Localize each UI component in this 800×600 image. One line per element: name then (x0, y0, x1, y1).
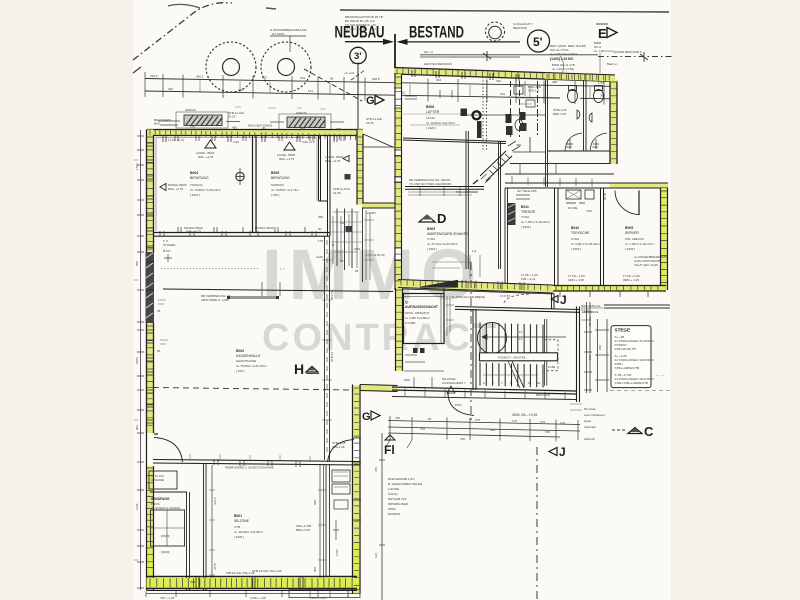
svg-text:[ 150 ]: [ 150 ] (271, 193, 280, 197)
svg-text:4+ 70,85m² 3+45,04m²: 4+ 70,85m² 3+45,04m² (190, 188, 221, 192)
svg-text:[ 1503 ]: [ 1503 ] (571, 247, 581, 251)
svg-text:Haus: Haus (584, 419, 592, 423)
svg-text:740: 740 (545, 430, 550, 434)
svg-text:1708 + 1,05: 1708 + 1,05 (250, 596, 266, 600)
svg-text:HEIFTEN BESTAND: HEIFTEN BESTAND (424, 62, 452, 66)
svg-text:AUSSMAUERN ?: AUSSMAUERN ? (442, 381, 466, 385)
svg-text:05: 05 (157, 309, 161, 313)
svg-text:175: 175 (540, 420, 545, 424)
svg-text:Fl: Fl (384, 443, 395, 457)
svg-text:C: C (644, 424, 654, 439)
svg-text:175: 175 (336, 127, 341, 131)
svg-text:LÜFTER: LÜFTER (426, 110, 440, 114)
svg-text:148: 148 (490, 428, 495, 432)
svg-text:2-ZONE: 2-ZONE (388, 487, 399, 491)
svg-text:12A42: 12A42 (426, 116, 435, 120)
svg-text:STB-13-ICE 700+1,06: STB-13-ICE 700+1,06 (252, 569, 282, 573)
svg-text:BRH 1,05: BRH 1,05 (553, 112, 566, 116)
svg-text:GY.OBL: GY.OBL (405, 321, 416, 325)
svg-text:BAU: BAU (154, 122, 160, 126)
svg-text:H: H (294, 361, 304, 377)
svg-text:Mad (+): Mad (+) (607, 62, 617, 66)
svg-text:50‚ronde: 50‚ronde (584, 407, 596, 411)
svg-text:B006: B006 (426, 105, 434, 109)
svg-text:900+ +4,75: 900+ +4,75 (279, 157, 295, 161)
svg-text:Attentats: Attentats (584, 425, 596, 429)
svg-text:[ 1503 ]: [ 1503 ] (625, 247, 635, 251)
svg-text:4+ 7,38m² 3+45,04m²: 4+ 7,38m² 3+45,04m² (521, 220, 550, 224)
svg-text:362: 362 (496, 79, 501, 83)
svg-text:17,0 +4,00 4X: 17,0 +4,00 4X (366, 253, 385, 257)
svg-text:B004: B004 (190, 171, 198, 175)
svg-text:G: G (366, 95, 375, 107)
svg-text:12: 12 (519, 330, 523, 334)
svg-text:GASCME: GASCME (151, 478, 164, 482)
svg-text:B011: B011 (521, 205, 529, 209)
svg-text:4+ 7,09m² 3+45,74m²: 4+ 7,09m² 3+45,74m² (625, 242, 654, 246)
svg-text:[ 1503 ]: [ 1503 ] (521, 225, 531, 229)
svg-text:C180: C180 (548, 365, 556, 369)
svg-text:NEUBAU: NEUBAU (335, 23, 385, 42)
svg-text:WINDFANG: WINDFANG (151, 497, 170, 501)
svg-text:B. ANSCHLUSS EBENE: B. ANSCHLUSS EBENE (452, 295, 485, 299)
svg-text:NJ-TANK: NJ-TANK (272, 32, 284, 36)
svg-text:605: 605 (135, 261, 139, 266)
svg-text:175: 175 (512, 419, 517, 423)
svg-text:05-116: 05-116 (588, 317, 592, 326)
svg-text:D: D (437, 211, 446, 226)
svg-text:G: G (362, 411, 371, 423)
svg-text:3,60: 3,60 (233, 140, 239, 144)
svg-text:760: 760 (460, 437, 465, 441)
svg-text:SB-ZONE: SB-ZONE (234, 519, 250, 523)
svg-text:BLECHWAND 1,8m: BLECHWAND 1,8m (388, 477, 415, 481)
svg-text:WAS ANSCHL.: WAS ANSCHL. (581, 304, 602, 308)
svg-text:4+05: 4+05 (316, 255, 323, 259)
svg-text:4+5,2: 4+5,2 (213, 497, 217, 505)
svg-text:450: 450 (318, 215, 323, 219)
svg-text:4+ SUSAN 4+SUSAN: 4+ SUSAN 4+SUSAN (151, 506, 180, 510)
svg-text:1753: 1753 (135, 163, 139, 170)
svg-text:KASSENHALLE: KASSENHALLE (236, 354, 261, 358)
svg-text:[ 1501 ]: [ 1501 ] (427, 247, 437, 251)
svg-text:MODUL B000: MODUL B000 (255, 226, 274, 230)
svg-text:P06 + 4,21: P06 + 4,21 (521, 277, 536, 281)
svg-text:1702: 1702 (335, 549, 339, 556)
svg-text:TOPHOA: TOPHOA (190, 183, 203, 187)
svg-text:10: 10 (537, 381, 541, 385)
svg-text:4+ 70,85m² 3+4,73m: 4+ 70,85m² 3+4,73m (271, 188, 299, 192)
svg-text:(0,0000 BESTAND A: (0,0000 BESTAND A (614, 50, 642, 54)
svg-text:05: 05 (157, 349, 161, 353)
svg-text:2009.00: 2009.00 (185, 108, 196, 112)
svg-text:BESTAND: BESTAND (513, 26, 528, 30)
svg-text:900+ +4,75: 900+ +4,75 (198, 155, 214, 159)
svg-text:450: 450 (300, 127, 305, 131)
svg-text:4+ 75,89m² 3+45,78m²: 4+ 75,89m² 3+45,78m² (236, 364, 267, 368)
svg-text:1,0: 1,0 (472, 249, 477, 253)
svg-text:B.: B. (332, 243, 335, 247)
svg-text:B005: B005 (271, 171, 279, 175)
svg-text:90: 90 (428, 417, 432, 421)
svg-text:STB-11: STB-11 (330, 352, 334, 362)
svg-text:17,04 +1,76: 17,04 +1,76 (168, 138, 184, 142)
svg-text:ABSTÄNDE N. 2,5M: ABSTÄNDE N. 2,5M (201, 298, 229, 302)
svg-text:BRH+1,05: BRH+1,05 (296, 528, 310, 532)
svg-text:184: 184 (300, 76, 305, 80)
svg-text:B009: B009 (625, 226, 633, 230)
svg-text:WARTEN/GARD./EVAK/PC: WARTEN/GARD./EVAK/PC (427, 232, 469, 236)
svg-text:700+1,06: 700+1,06 (332, 445, 345, 449)
svg-text:2009.00: 2009.00 (296, 111, 307, 115)
svg-text:J: J (560, 293, 567, 307)
svg-text:4+ 48,29m² 3+8,29m²: 4+ 48,29m² 3+8,29m² (234, 530, 263, 534)
svg-text:900+ +4,75: 900+ +4,75 (168, 187, 184, 191)
svg-text:570: 570 (500, 92, 505, 96)
svg-text:PERRONERE 2. SUSEITZONAHME: PERRONERE 2. SUSEITZONAHME (225, 466, 274, 470)
svg-text:392: 392 (262, 76, 267, 80)
svg-text:368: 368 (552, 80, 557, 84)
svg-text:110: 110 (560, 421, 565, 425)
svg-text:AUFZUGSSCHACHT: AUFZUGSSCHACHT (405, 305, 439, 309)
svg-text:21,05: 21,05 (228, 115, 236, 119)
svg-text:260: 260 (598, 345, 602, 350)
svg-text:900+ +4,75: 900+ +4,75 (325, 159, 341, 163)
svg-text:P06. A09/0,05: P06. A09/0,05 (625, 237, 644, 241)
svg-text:VYB: VYB (234, 525, 240, 529)
svg-text:RAMPFZ: RAMPFZ (388, 512, 401, 516)
svg-text:BESTAND: BESTAND (536, 393, 551, 397)
svg-text:3000, 05—+4,15: 3000, 05—+4,15 (512, 413, 537, 417)
svg-text:SAT(A): SAT(A) (388, 492, 398, 496)
svg-text:175: 175 (190, 125, 195, 129)
svg-text:SAPWOV: SAPWOV (271, 183, 284, 187)
svg-text:4770: 4770 (213, 563, 217, 570)
svg-text:141: 141 (308, 89, 313, 93)
svg-text:4,2 057: 4,2 057 (366, 211, 376, 215)
svg-text:190: 190 (238, 88, 243, 92)
svg-text:J: J (559, 445, 566, 459)
svg-text:[ 1520 ]: [ 1520 ] (234, 535, 244, 539)
svg-text:B003: B003 (427, 227, 435, 231)
svg-text:PPAC: PPAC (388, 507, 397, 511)
svg-text:STÜHRE: STÜHRE (163, 243, 175, 247)
svg-text:VYDA: VYDA (521, 215, 529, 219)
svg-text:VILL¶ GEV. 24,05: VILL¶ GEV. 24,05 (634, 263, 658, 267)
svg-text:5': 5' (533, 35, 543, 49)
svg-text:HAUPTKASSE: HAUPTKASSE (236, 359, 256, 363)
svg-text:STB 1,0: STB 1,0 (528, 89, 539, 93)
svg-text:4+ 5,86m² 3+45,04m²: 4+ 5,86m² 3+45,04m² (571, 242, 600, 246)
svg-text:292: 292 (168, 87, 173, 91)
svg-text:05: 05 (355, 269, 359, 273)
svg-text:PODEST + BAUTEIL: PODEST + BAUTEIL (498, 356, 527, 360)
svg-text:SPKG. KB/RA¶ M: SPKG. KB/RA¶ M (405, 311, 429, 315)
svg-text:4+ 75,76m² 5+45,26m²: 4+ 75,76m² 5+45,26m² (427, 242, 458, 246)
svg-text:21,05: 21,05 (333, 191, 341, 195)
svg-text:VYDA: VYDA (427, 237, 435, 241)
svg-text:POS: POS (455, 403, 461, 407)
svg-text:4+ 2,79m² 3+2,07m²: 4+ 2,79m² 3+2,07m² (550, 52, 577, 56)
svg-text:STBH STB+LAMPE/UTB: STBH STB+LAMPE/UTB (615, 381, 648, 385)
svg-text:370: 370 (374, 467, 378, 472)
svg-text:BERATUNG: BERATUNG (190, 176, 209, 180)
svg-text:GIT TELE AN¶: GIT TELE AN¶ (517, 189, 537, 193)
svg-text:30 60E: 30 60E (568, 206, 578, 210)
svg-text:— · —: — · — (656, 373, 665, 377)
svg-text:STB+LAMPE/UTB: STB+LAMPE/UTB (615, 366, 640, 370)
svg-text:Lehm Abbauers: Lehm Abbauers (584, 413, 606, 417)
svg-text:1146: 1146 (135, 503, 139, 510)
svg-text:176: 176 (318, 239, 323, 243)
svg-text:E: E (598, 26, 607, 41)
svg-text:605: 605 (313, 567, 317, 572)
svg-text:394: 394 (436, 78, 441, 82)
svg-text:SERVER: SERVER (625, 231, 639, 235)
svg-text:0984 + 1,05: 0984 + 1,05 (623, 278, 639, 282)
svg-text:BESTAND: BESTAND (409, 23, 464, 42)
svg-text:KELA-BLF-DWCE: KELA-BLF-DWCE (248, 124, 272, 128)
svg-text:TEEKÜCHE: TEEKÜCHE (571, 231, 590, 235)
svg-text:293,5: 293,5 (150, 74, 158, 78)
svg-text:TRESOR: TRESOR (521, 210, 536, 214)
svg-text:[ 1420 ]: [ 1420 ] (426, 126, 436, 130)
svg-text:904: 904 (135, 425, 139, 430)
svg-text:13: 13 (519, 337, 523, 341)
svg-text:96: 96 (330, 77, 334, 81)
svg-text:4+ 2,86² 3+4,80m²: 4+ 2,86² 3+4,80m² (405, 316, 430, 320)
svg-text:368: 368 (600, 94, 605, 98)
svg-text:4GE: 4GE (566, 145, 572, 149)
svg-text:90: 90 (318, 227, 322, 231)
svg-text:BERATUNG: BERATUNG (271, 176, 290, 180)
svg-text:21,05: 21,05 (366, 121, 374, 125)
svg-text:STB+ANTRI‚IT¶: STB+ANTRI‚IT¶ (615, 347, 637, 351)
svg-text:B010: B010 (571, 226, 579, 230)
svg-text:CONTRACT: CONTRACT (262, 317, 499, 359)
svg-text:3': 3' (354, 51, 362, 62)
svg-text:4GE: 4GE (592, 145, 598, 149)
svg-text:450,1: 450,1 (196, 75, 204, 79)
svg-text:2254: 2254 (135, 357, 139, 364)
svg-text:VYDA: VYDA (571, 237, 579, 241)
svg-text:BWS/BAUSER: BWS/BAUSER (388, 502, 409, 506)
svg-text:172: 172 (588, 355, 592, 360)
svg-text:4+ 22,06m² 3+8,73m²: 4+ 22,06m² 3+8,73m² (426, 121, 455, 125)
svg-text:278: 278 (475, 418, 480, 422)
svg-text:[ 150 ]: [ 150 ] (236, 369, 245, 373)
svg-text:126: 126 (374, 553, 378, 558)
svg-text:[ 1507 ]: [ 1507 ] (190, 193, 200, 197)
svg-text:605: 605 (313, 500, 317, 505)
svg-text:098: 098 (190, 580, 195, 584)
svg-text:4+ 1,94m² (H+): 4+ 1,94m² (H+) (594, 49, 614, 53)
svg-text:B.517: B.517 (163, 249, 171, 253)
svg-text:B001: B001 (234, 514, 242, 518)
svg-text:DETAILB 3X3: DETAILB 3X3 (388, 497, 407, 501)
svg-text:B002: B002 (236, 349, 244, 353)
svg-text:740: 740 (420, 427, 425, 431)
svg-text:451,72: 451,72 (330, 290, 334, 300)
svg-text:SIB-13-ICE 700+1,06: SIB-13-ICE 700+1,06 (226, 571, 255, 575)
svg-text:[1520]: [1520] (161, 534, 170, 538)
svg-text:2R—d: 2R—d (424, 50, 433, 54)
svg-text:B. GEGENÜBER TEILEN: B. GEGENÜBER TEILEN (388, 482, 422, 486)
svg-text:700 + 1,06: 700 + 1,06 (160, 596, 175, 600)
svg-text:1520 + 1,05: 1520 + 1,05 (310, 596, 326, 600)
svg-text:368,5: 368,5 (372, 77, 380, 81)
svg-text:STEGE: STEGE (615, 328, 631, 333)
svg-text:450: 450 (232, 126, 237, 130)
svg-text:25 W: 25 W (603, 193, 607, 200)
svg-text:1984 + 4,05: 1984 + 4,05 (568, 278, 584, 282)
svg-text:+3 +2,6: +3 +2,6 (344, 71, 355, 75)
svg-text:TO AND NO STEG GEHÖRNIS: TO AND NO STEG GEHÖRNIS (409, 182, 451, 186)
svg-text:90: 90 (262, 126, 266, 130)
svg-text:28: 28 (340, 259, 344, 263)
svg-text:Abbruch: Abbruch (584, 437, 596, 441)
svg-text:[1520]: [1520] (161, 550, 170, 554)
svg-text:4,05: 4,05 (586, 209, 592, 213)
svg-text:Q.: Q. (405, 300, 409, 304)
svg-text:760: 760 (395, 416, 400, 420)
